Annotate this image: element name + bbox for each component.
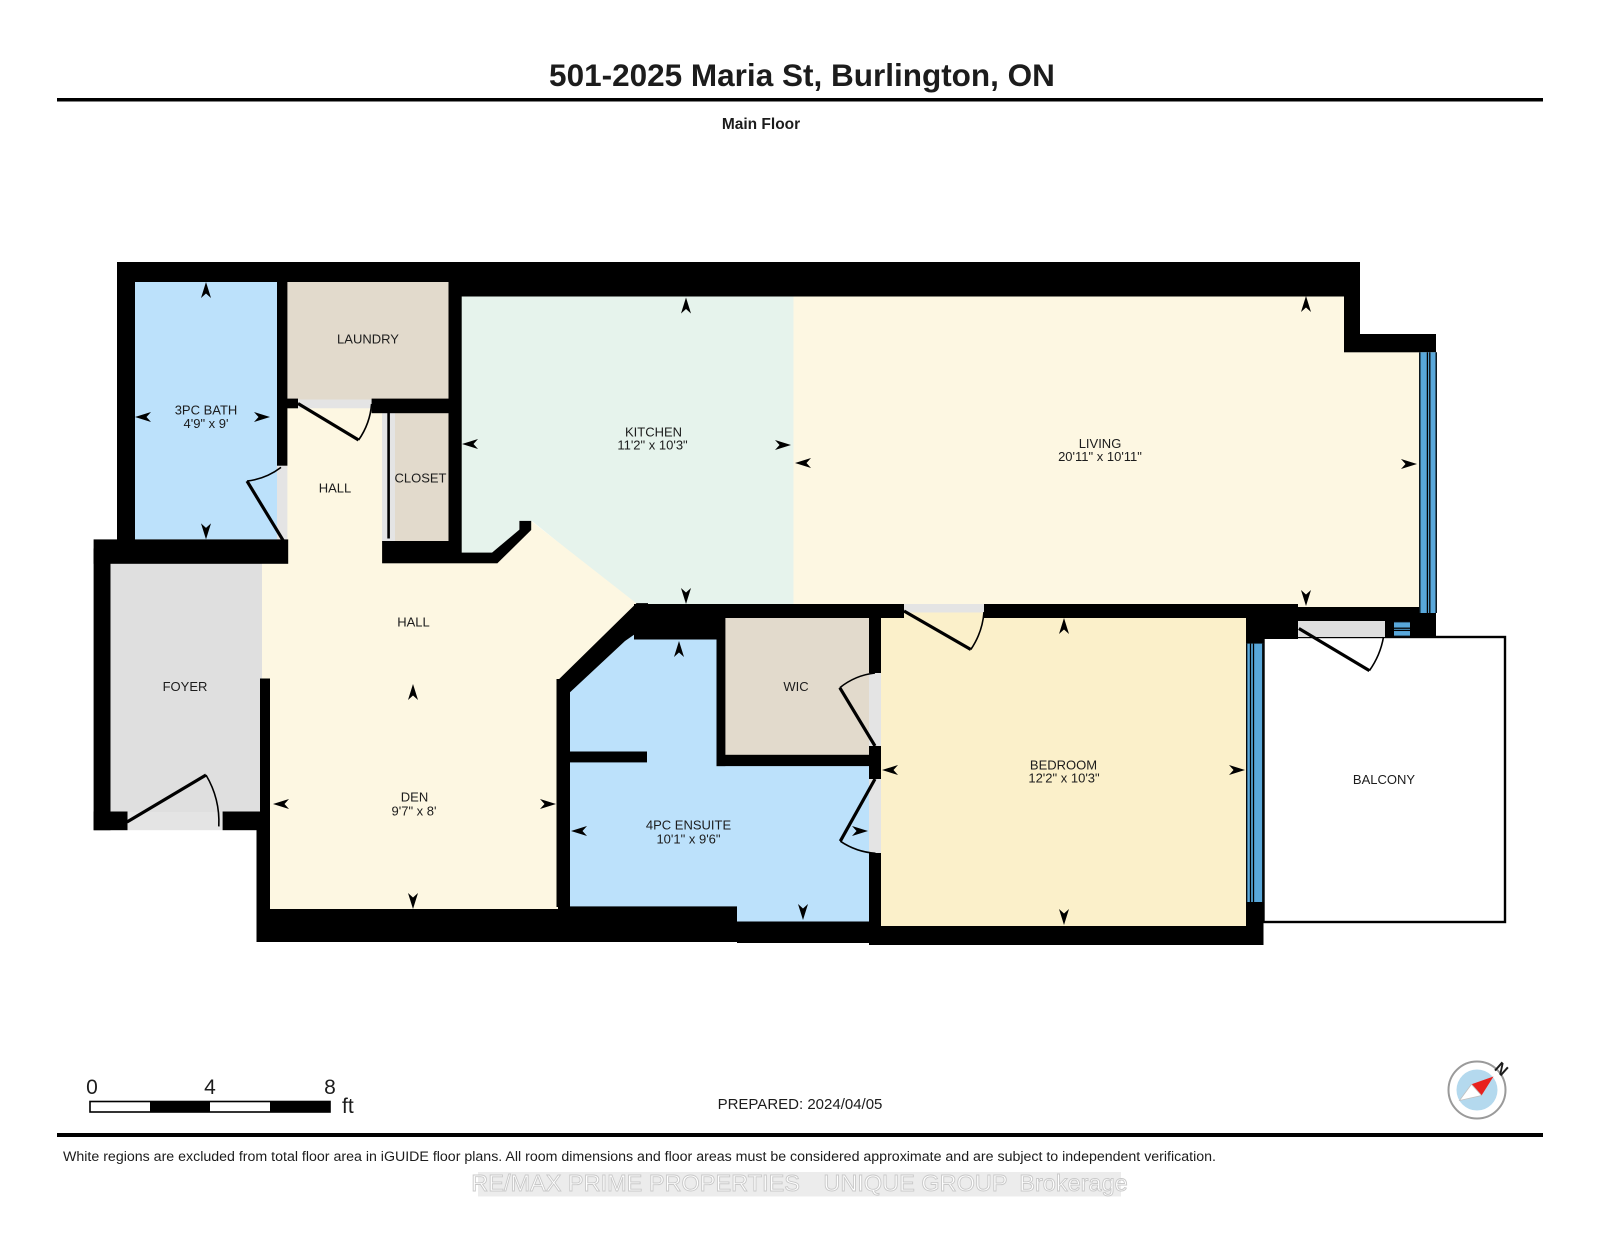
svg-text:PREPARED: 2024/04/05: PREPARED: 2024/04/05 bbox=[718, 1096, 883, 1113]
svg-text:501-2025 Maria St, Burlington,: 501-2025 Maria St, Burlington, ON bbox=[549, 57, 1055, 93]
svg-text:LAUNDRY: LAUNDRY bbox=[337, 332, 399, 347]
svg-text:10'1" x 9'6": 10'1" x 9'6" bbox=[656, 831, 720, 846]
svg-text:20'11" x 10'11": 20'11" x 10'11" bbox=[1058, 449, 1142, 464]
svg-text:12'2" x 10'3": 12'2" x 10'3" bbox=[1028, 771, 1100, 786]
svg-text:BALCONY: BALCONY bbox=[1353, 772, 1415, 787]
svg-text:WIC: WIC bbox=[783, 679, 808, 694]
svg-text:RE/MAX PRIME PROPERTIES UNIQUE: RE/MAX PRIME PROPERTIES UNIQUE GROUP Bro… bbox=[471, 1170, 1127, 1196]
svg-text:8: 8 bbox=[324, 1076, 336, 1099]
svg-text:Main Floor: Main Floor bbox=[722, 116, 800, 133]
svg-text:DEN: DEN bbox=[401, 790, 428, 805]
svg-text:9'7" x 8': 9'7" x 8' bbox=[392, 804, 437, 819]
svg-text:ft: ft bbox=[342, 1095, 354, 1118]
svg-text:HALL: HALL bbox=[397, 615, 430, 630]
svg-text:4PC ENSUITE: 4PC ENSUITE bbox=[646, 818, 732, 833]
svg-text:White regions are excluded fro: White regions are excluded from total fl… bbox=[63, 1149, 1216, 1165]
svg-text:4: 4 bbox=[204, 1076, 216, 1099]
svg-text:CLOSET: CLOSET bbox=[394, 471, 446, 486]
svg-text:HALL: HALL bbox=[319, 481, 352, 496]
svg-text:4'9" x 9': 4'9" x 9' bbox=[184, 416, 229, 431]
svg-text:0: 0 bbox=[86, 1076, 98, 1099]
svg-text:11'2" x 10'3": 11'2" x 10'3" bbox=[617, 438, 688, 453]
svg-text:FOYER: FOYER bbox=[163, 679, 208, 694]
